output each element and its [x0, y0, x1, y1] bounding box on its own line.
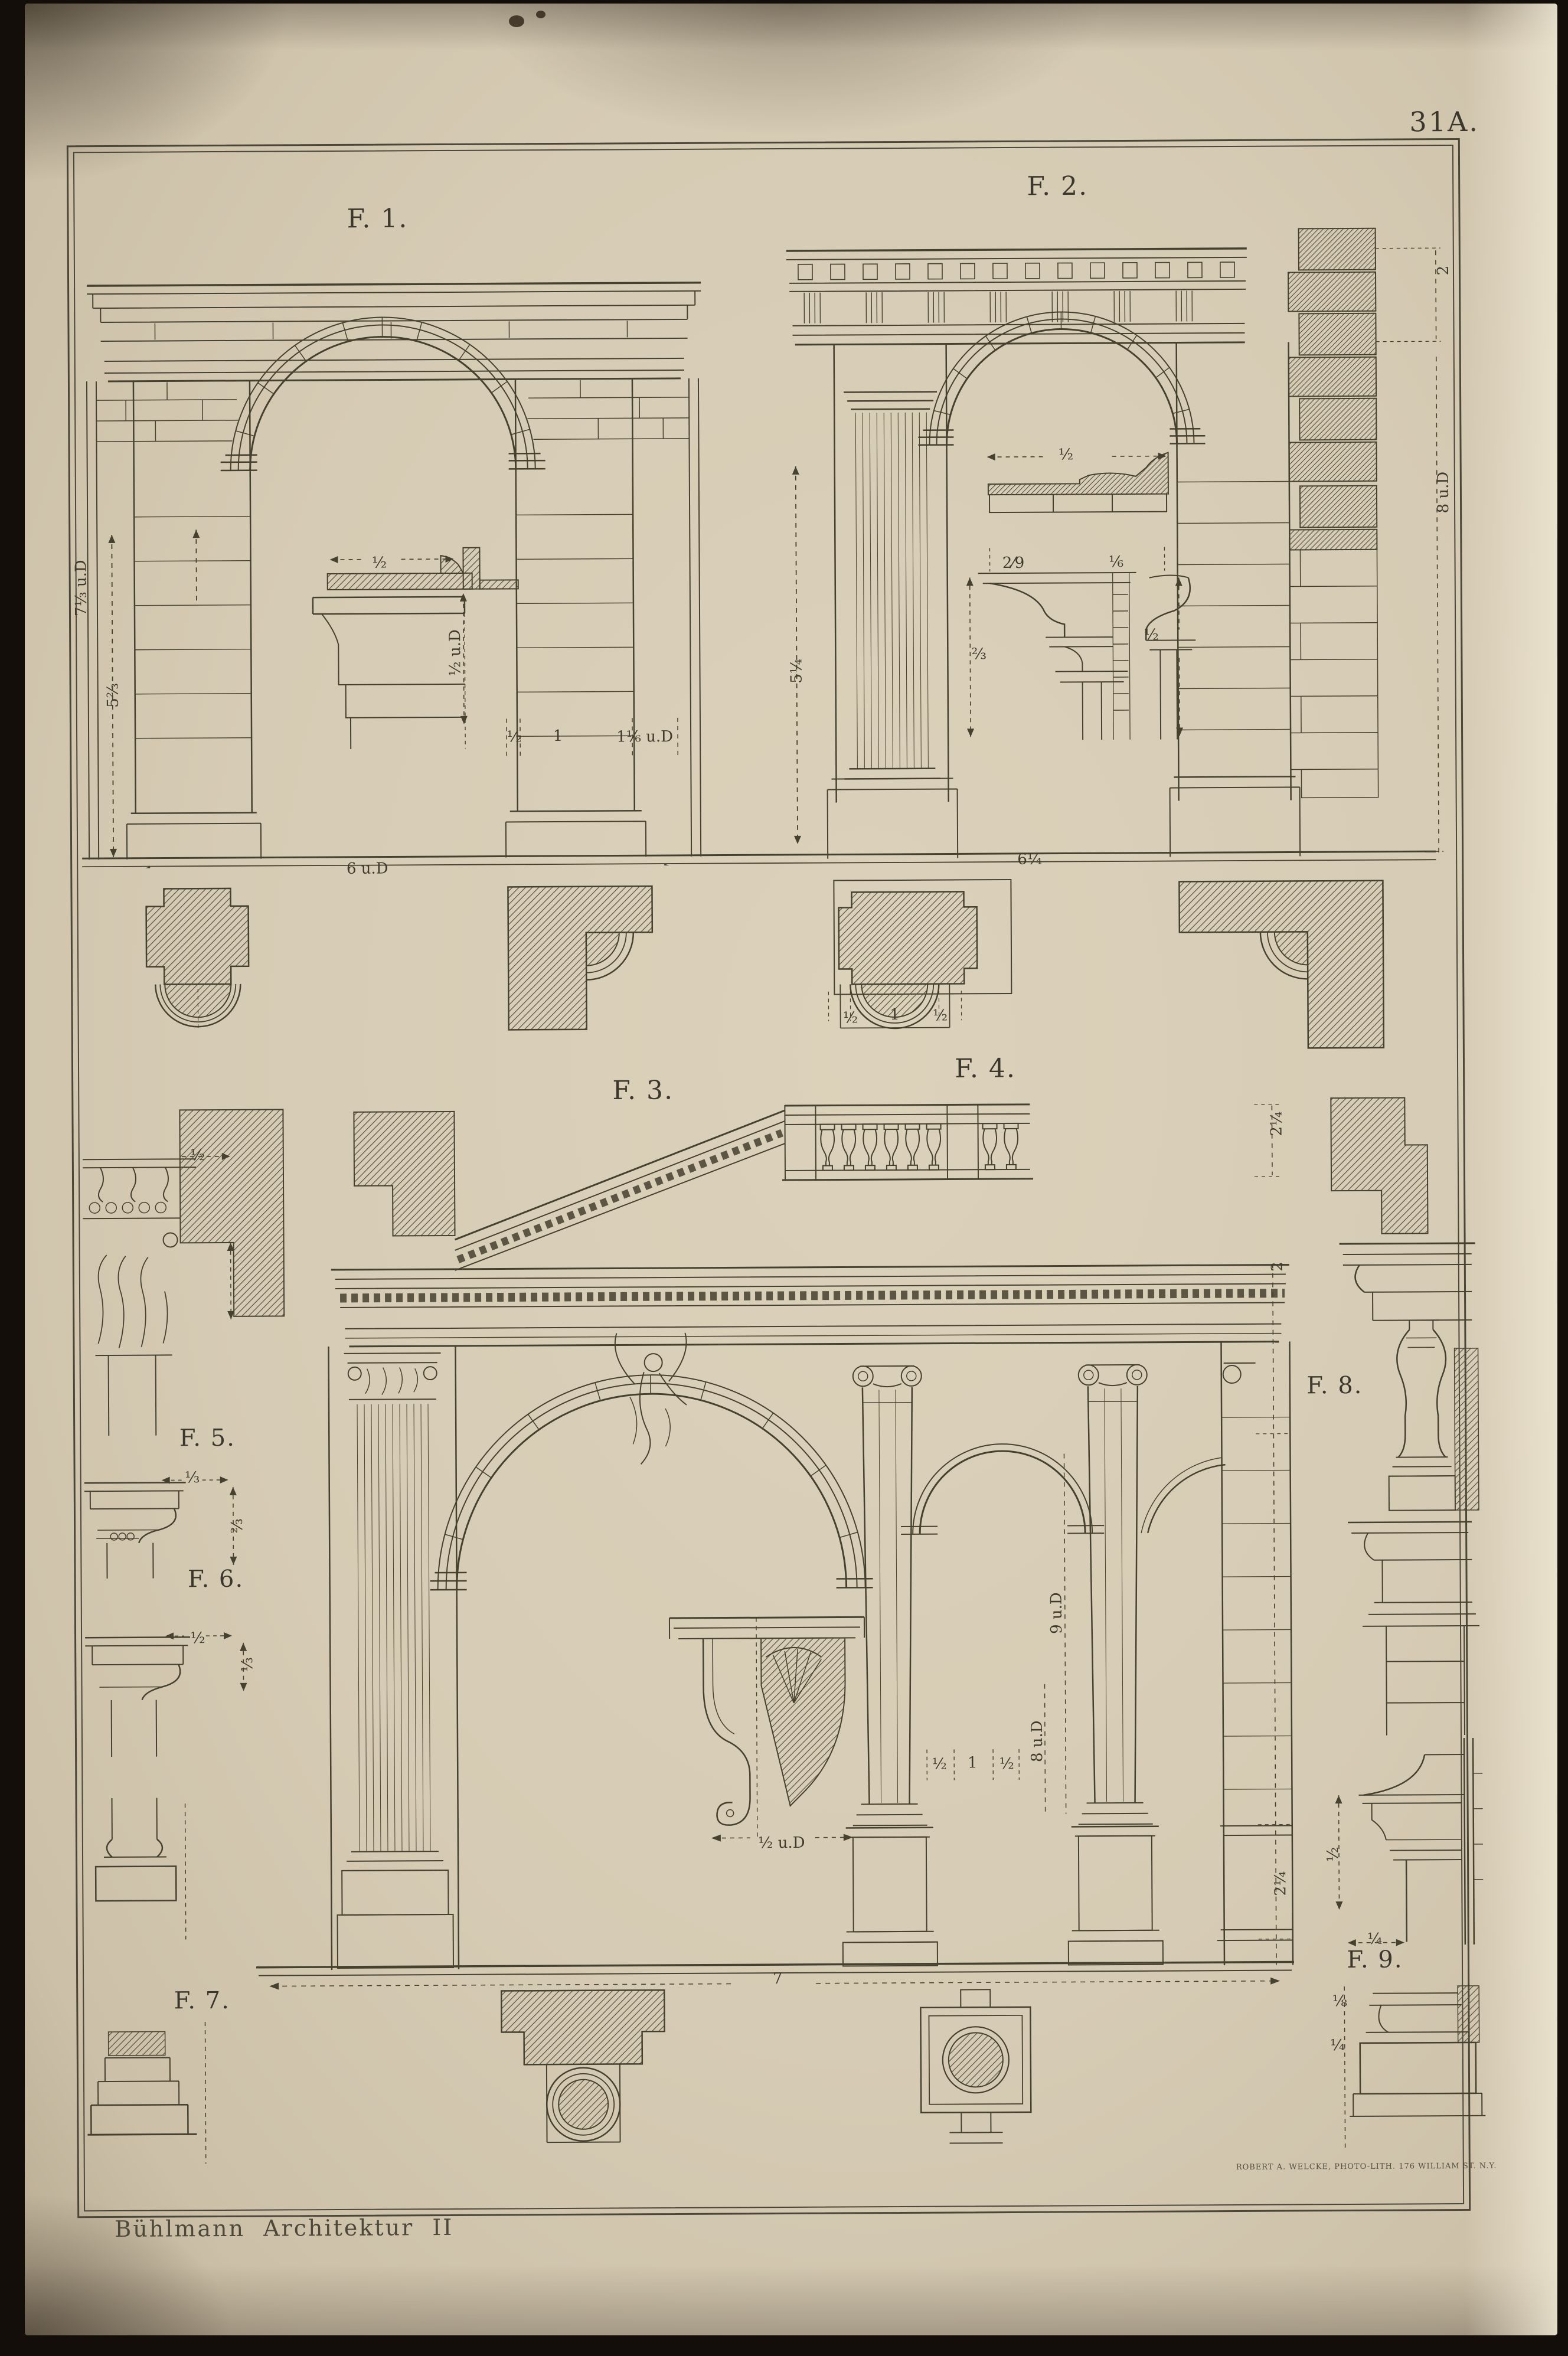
plan-pier-1 [131, 883, 264, 1040]
figure-4-label: F. 4. [955, 1053, 1016, 1084]
dim-f2-corner-top: 2 [1435, 266, 1452, 276]
dim-f4-col-left: ½ [932, 1756, 947, 1773]
dim-f9-offset-width: ¼ [1367, 1930, 1382, 1948]
plate-title-caption: Bühlmann Architektur II [115, 2214, 453, 2242]
dim-f7-cap-height: ⅓ [239, 1657, 256, 1672]
dim-f4-arch-height: 9 u.D [1048, 1592, 1066, 1634]
dim-f1-impost-width: ½ [372, 554, 387, 572]
dim-f1-base-left: ½ [507, 728, 521, 746]
figure-8-drawing [1322, 1094, 1485, 1744]
dim-f2-right-height: 8 u.D [1435, 472, 1452, 514]
dim-f9-base-upper: ⅛ [1332, 1992, 1347, 2010]
figure-5-label: F. 5. [179, 1424, 236, 1452]
dim-f4-frieze: 2 [1269, 1262, 1286, 1272]
dim-f4-col-right: ½ [999, 1755, 1014, 1773]
plan-pier-4 [1170, 868, 1402, 1064]
dim-f4-col-mid: 1 [968, 1754, 978, 1772]
lithographer-credit: ROBERT A. WELCKE, PHOTO-LITH. 176 WILLIA… [1236, 2162, 1497, 2172]
figure-7-drawing [85, 1608, 292, 2170]
scanned-plate-photo: { "plate": { "number": "31A.", "caption_… [0, 0, 1568, 2352]
dim-f3-base-width: 7 [773, 1970, 783, 1988]
dim-f1-base-right: 1⅙ u.D [616, 728, 673, 746]
figure-1-label: F. 1. [347, 204, 409, 234]
plan-detail-right [913, 1982, 1038, 2151]
figure-5-drawing [82, 1106, 288, 1438]
figure-8-label: F. 8. [1306, 1372, 1363, 1399]
plan-pier-2 [497, 874, 672, 1044]
plan-detail-left [494, 1981, 672, 2154]
dim-f6-abacus-width: ⅓ [185, 1469, 200, 1486]
dim-f3-console-width: ½ u.D [758, 1834, 805, 1852]
printed-plate: 31A. [0, 0, 1568, 2356]
dim-f4-column-height: 8 u.D [1028, 1720, 1046, 1762]
dim-f6-cap-height: ⅔ [228, 1518, 246, 1533]
dim-f7-abacus-width: ½ [190, 1629, 205, 1647]
dim-f2-profile-width: ½ [1059, 446, 1073, 463]
dim-f9-cornice-height: ½ [1324, 1847, 1342, 1861]
dim-f2-left-height: 5¼ [788, 659, 805, 684]
figure-6-label: F. 6. [188, 1566, 244, 1593]
plate-number: 31A. [1409, 106, 1479, 138]
dim-plan-center: 1 [890, 1006, 900, 1024]
dim-f2-width: 6¼ [1017, 851, 1042, 868]
dim-f4-pedestal: 2¼ [1272, 1871, 1289, 1896]
dim-f1-height-lower: 5⅔ [104, 683, 122, 708]
dim-f1-impost-height: ½ u.D [446, 629, 464, 676]
dim-plan-left: ½ [843, 1009, 858, 1027]
figure-3-label: F. 3. [612, 1075, 674, 1106]
dim-plan-right: ½ [933, 1007, 948, 1025]
dim-f2-cap-height-left: ⅔ [972, 645, 986, 663]
figure-7-label: F. 7. [174, 1987, 230, 2014]
dim-f1-width: 6 u.D [347, 860, 388, 878]
dim-f2-cap-top-right: ⅙ [1109, 553, 1123, 571]
dim-f4-balustrade: 2¼ [1268, 1112, 1285, 1136]
dim-f5-cornice-width: ½ [190, 1146, 205, 1164]
dim-f2-cap-height-right: ½ [1144, 626, 1159, 644]
figure-2-label: F. 2. [1027, 171, 1088, 202]
dim-f1-height-upper: 7⅓ u.D [73, 560, 91, 616]
figure-2-drawing [780, 215, 1448, 865]
figure-6-drawing [84, 1449, 282, 1580]
dim-f2-cap-top-left: 2⁄9 [1002, 554, 1025, 572]
dim-f1-base-mid: 1 [553, 727, 563, 745]
figure-1-drawing [78, 248, 772, 868]
figure-9-label: F. 9. [1347, 1946, 1403, 1973]
dim-f9-base-lower: ¼ [1330, 2037, 1345, 2054]
